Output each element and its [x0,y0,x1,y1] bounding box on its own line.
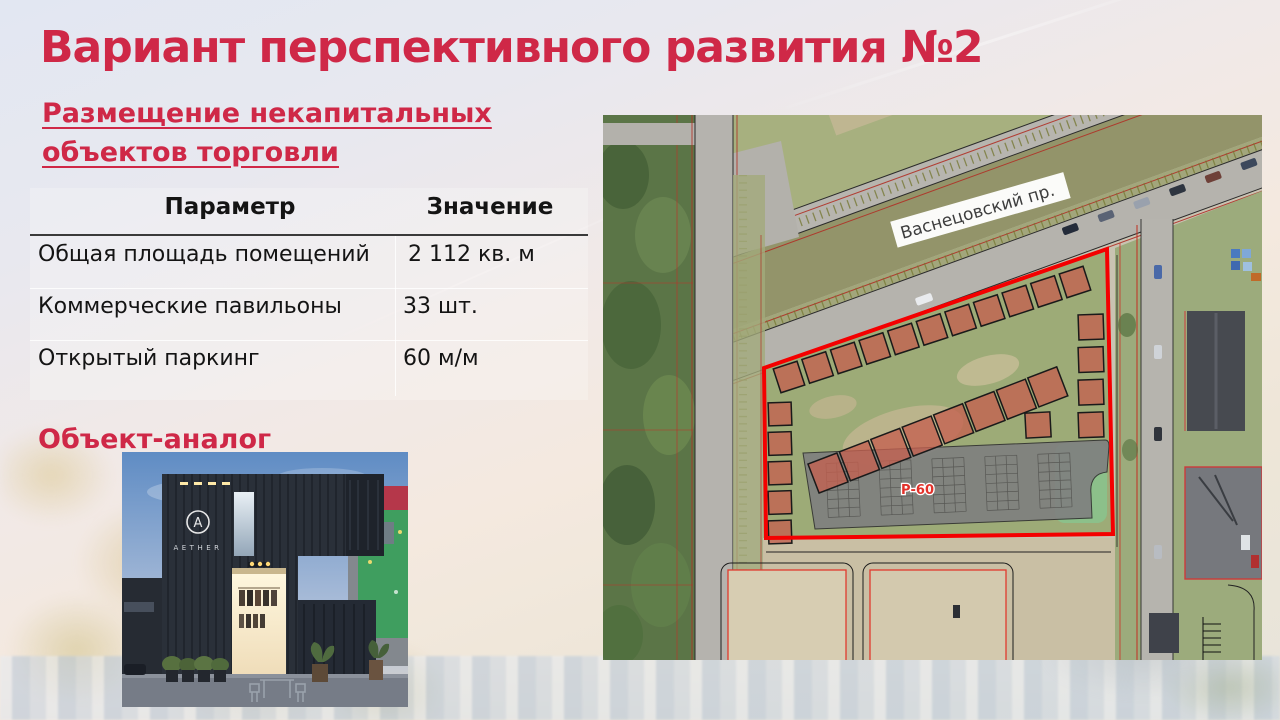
map-small-building [1149,613,1179,653]
table-column-divider [395,236,396,396]
subtitle-line-2: объектов торговли [42,137,339,168]
site-plan-map: Васнецовский пр. [603,115,1262,660]
pavilion [768,402,792,426]
page-title: Вариант перспективного развития №2 [40,22,1140,73]
pavilion [1078,379,1104,405]
parking-capacity-label: Р-60 [901,483,934,498]
table-row-param: Общая площадь помещений [38,242,370,267]
subtitle-line-1: Размещение некапитальных [42,98,492,129]
slide-subtitle: Размещение некапитальных объектов торгов… [42,94,562,172]
pavilion [768,491,792,515]
table-header-divider [30,234,588,236]
slide-background: Вариант перспективного развития №2 Разме… [0,0,1280,720]
analog-photo: A AETHER [122,452,408,707]
table-row-value: 2 112 кв. м [408,242,535,267]
pavilion [768,461,792,485]
analog-object-heading: Объект-аналог [38,424,271,455]
pavilion [1078,347,1104,373]
map-plot-2 [863,563,1013,660]
table-row-param: Открытый паркинг [38,346,260,371]
table-row-divider [30,340,588,341]
pavilion [1025,412,1051,438]
table-header-param: Параметр [70,194,390,220]
parameters-table: Параметр Значение Общая площадь помещени… [30,188,588,400]
pavilion [768,432,792,456]
table-header-value: Значение [400,194,580,220]
pavilion [1078,412,1104,438]
svg-text:A: A [194,516,203,531]
table-row-param: Коммерческие павильоны [38,294,342,319]
pavilion [1078,314,1104,340]
photo-parked-car [124,664,146,675]
table-row-value: 60 м/м [403,346,479,371]
photo-pavement [122,674,408,707]
svg-text:AETHER: AETHER [173,544,222,552]
map-industrial-yard [1185,467,1262,579]
map-forest [603,115,695,660]
table-row-divider [30,288,588,289]
map-top-stub-road [603,123,695,145]
photo-left-building [122,578,162,678]
pavilion [768,520,792,544]
map-left-road [695,115,733,660]
map-plot-1 [721,563,853,660]
table-row-value: 33 шт. [403,294,478,319]
